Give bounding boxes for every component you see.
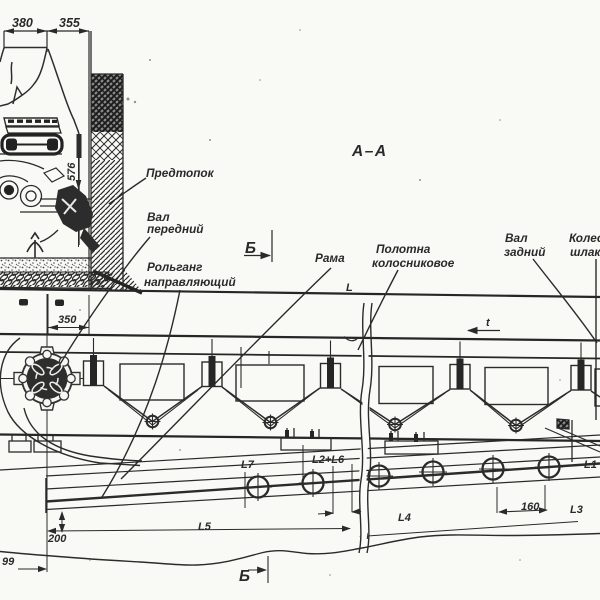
svg-text:Рама: Рама (315, 251, 345, 265)
svg-text:L7: L7 (241, 459, 255, 471)
svg-text:380: 380 (12, 16, 33, 30)
svg-text:L5: L5 (198, 521, 212, 533)
svg-text:Вал: Вал (505, 231, 528, 245)
svg-text:направляющий: направляющий (144, 275, 236, 289)
svg-text:99: 99 (2, 556, 15, 568)
svg-text:160: 160 (521, 501, 540, 513)
svg-text:передний: передний (147, 222, 204, 236)
svg-text:Полотна: Полотна (376, 242, 431, 256)
svg-text:350: 350 (58, 314, 77, 326)
svg-text:t: t (486, 317, 491, 329)
svg-text:L3: L3 (570, 504, 583, 516)
svg-text:L1: L1 (584, 459, 597, 471)
svg-text:Предтопок: Предтопок (146, 166, 215, 180)
svg-text:Рольганг: Рольганг (147, 260, 202, 274)
svg-text:L: L (346, 282, 353, 294)
svg-text:L2+L6: L2+L6 (312, 454, 345, 466)
svg-text:колосниковое: колосниковое (372, 256, 455, 270)
svg-text:L4: L4 (398, 512, 411, 524)
svg-text:шлаковое: шлаковое (570, 245, 600, 259)
svg-text:Б: Б (245, 240, 256, 257)
svg-text:задний: задний (504, 245, 545, 259)
svg-text:576: 576 (66, 162, 78, 181)
svg-text:355: 355 (59, 16, 81, 30)
svg-text:А–А: А–А (351, 143, 388, 160)
svg-text:Колесо: Колесо (569, 231, 600, 245)
svg-text:200: 200 (47, 533, 67, 545)
